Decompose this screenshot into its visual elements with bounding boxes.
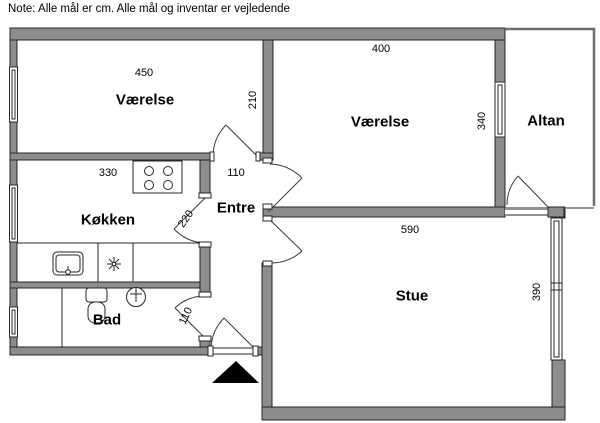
wall-left-seg3 <box>10 242 17 307</box>
asterisk-symbol-icon <box>107 257 121 271</box>
door-balcony <box>507 176 549 208</box>
room-label-living: Stue <box>396 288 429 305</box>
wall-living-top <box>263 207 505 217</box>
window-bath <box>10 307 18 337</box>
dim-hall-width: 110 <box>227 167 245 179</box>
dim-bedroom-right-depth: 340 <box>476 112 488 130</box>
window-bedroom-left <box>10 67 18 122</box>
floor-plan: Note: Alle mål er cm. Alle mål og invent… <box>0 0 600 423</box>
room-label-balcony: Altan <box>527 113 565 130</box>
window-bedroom-right <box>495 82 505 137</box>
wall-right-bedroom-seg2 <box>495 137 505 217</box>
room-label-bedroom-right: Værelse <box>351 114 409 131</box>
wall-bottom-left <box>10 347 210 355</box>
dim-bedroom-right-width: 400 <box>372 43 390 55</box>
door-bedroom-left <box>210 125 260 161</box>
window-living <box>551 218 562 360</box>
dim-bedroom-left-width: 450 <box>135 67 153 79</box>
room-label-hall: Entre <box>217 200 255 217</box>
wall-living-left <box>262 263 272 420</box>
wall-bedroomL-bottom <box>10 153 212 160</box>
balcony-door-threshold <box>505 207 564 217</box>
interior-walls <box>10 40 505 347</box>
wall-living-bottom <box>262 407 565 420</box>
note-text: Note: Alle mål er cm. Alle mål og invent… <box>8 3 290 15</box>
room-label-kitchen: Køkken <box>81 212 135 229</box>
wall-kitchen-right-seg2 <box>200 243 210 295</box>
kitchen-counter <box>17 243 200 282</box>
washbasin-icon <box>127 288 146 307</box>
wall-kitchen-right-seg1 <box>200 160 210 197</box>
wall-left-seg1 <box>10 40 17 67</box>
room-label-bath: Bad <box>93 312 121 329</box>
wall-top <box>10 28 505 40</box>
kitchen-sink-icon <box>53 252 83 275</box>
stove-icon <box>133 161 182 193</box>
wall-kitchen-bath-divider <box>10 282 200 288</box>
dim-bedroom-left-depth: 210 <box>247 91 259 109</box>
wall-right-bedroom-seg1 <box>495 40 505 82</box>
dim-living-depth: 390 <box>531 283 543 301</box>
room-label-bedroom-left: Værelse <box>116 92 174 109</box>
doors <box>174 125 549 356</box>
door-entrance <box>208 318 258 356</box>
door-bedroom-right <box>263 158 302 212</box>
wall-bedroom-divider <box>263 40 273 160</box>
door-living <box>263 216 302 266</box>
dim-kitchen-width: 330 <box>99 167 117 179</box>
window-kitchen <box>10 185 18 242</box>
dim-living-width: 590 <box>401 224 419 236</box>
entrance-arrow <box>212 361 259 383</box>
